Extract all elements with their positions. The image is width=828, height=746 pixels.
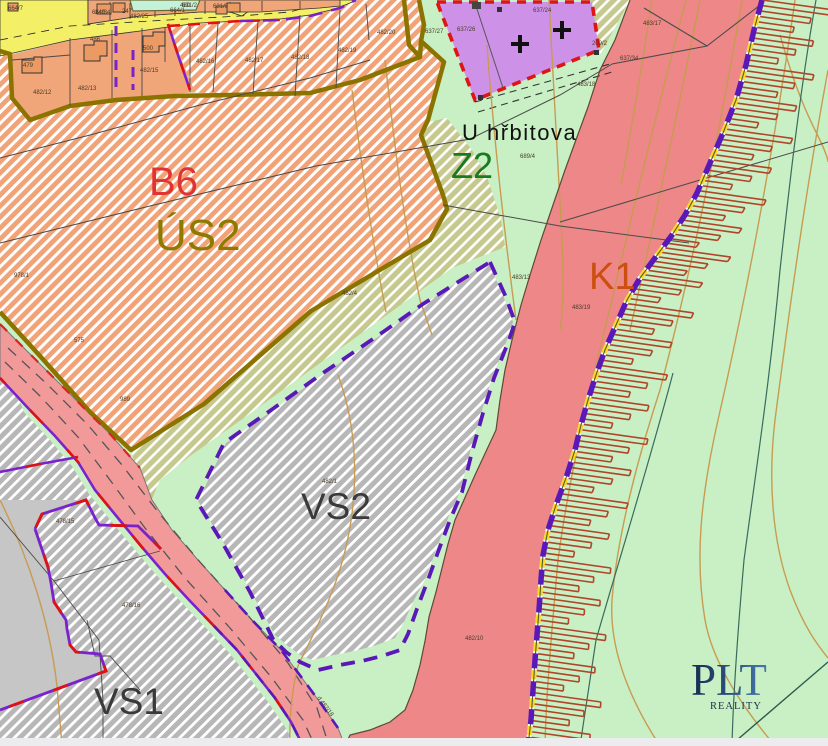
svg-text:637/27: 637/27	[425, 29, 444, 35]
svg-text:486: 486	[90, 37, 101, 43]
svg-text:631/2: 631/2	[182, 3, 198, 9]
svg-text:482/1: 482/1	[322, 479, 338, 485]
svg-text:482/17: 482/17	[245, 58, 264, 64]
svg-text:482/19: 482/19	[338, 48, 357, 54]
svg-text:Z2: Z2	[451, 145, 493, 186]
svg-text:689/4: 689/4	[520, 154, 536, 160]
svg-text:500: 500	[143, 46, 154, 52]
svg-text:664/7: 664/7	[8, 6, 24, 12]
svg-text:482/10: 482/10	[465, 636, 484, 642]
svg-text:VS1: VS1	[94, 681, 164, 722]
svg-text:482/20: 482/20	[377, 30, 396, 36]
svg-text:989: 989	[120, 397, 131, 403]
svg-text:483/18: 483/18	[577, 82, 596, 88]
svg-text:483/17: 483/17	[643, 21, 662, 27]
svg-text:664/34: 664/34	[92, 10, 111, 16]
svg-text:209/2: 209/2	[592, 41, 608, 47]
svg-text:ÚS2: ÚS2	[155, 211, 241, 260]
svg-text:478/16: 478/16	[122, 603, 141, 609]
svg-text:637/26: 637/26	[457, 27, 476, 33]
svg-text:482/13: 482/13	[78, 86, 97, 92]
svg-text:482/4: 482/4	[342, 291, 358, 297]
svg-text:483/19: 483/19	[572, 305, 591, 311]
svg-text:K1: K1	[589, 256, 635, 298]
svg-text:575: 575	[74, 338, 85, 344]
svg-text:482/16: 482/16	[196, 59, 215, 65]
svg-text:637/24: 637/24	[533, 8, 552, 14]
svg-text:VS2: VS2	[301, 486, 371, 527]
svg-text:REALITY: REALITY	[710, 701, 762, 712]
svg-text:479: 479	[23, 63, 34, 69]
svg-text:PLT: PLT	[691, 655, 767, 705]
svg-text:482/25: 482/25	[130, 14, 149, 20]
svg-text:B6: B6	[149, 160, 198, 204]
svg-text:978/1: 978/1	[14, 273, 30, 279]
svg-text:631/9: 631/9	[213, 4, 229, 10]
svg-text:637/34: 637/34	[620, 56, 639, 62]
svg-text:483/13: 483/13	[512, 275, 531, 281]
svg-text:478/15: 478/15	[56, 519, 75, 525]
svg-text:247: 247	[122, 9, 133, 15]
svg-text:482/15: 482/15	[140, 68, 159, 74]
svg-text:482/12: 482/12	[33, 90, 52, 96]
svg-text:482/18: 482/18	[291, 55, 310, 61]
svg-text:U hřbitova: U hřbitova	[462, 120, 577, 145]
